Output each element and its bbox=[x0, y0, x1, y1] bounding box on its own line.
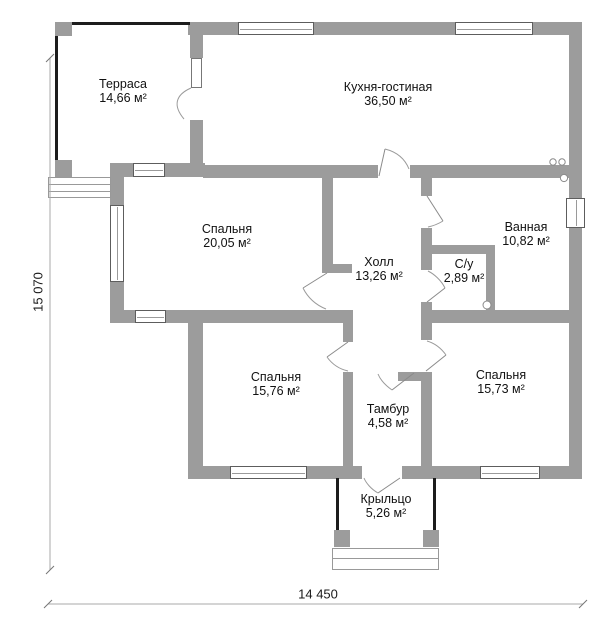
wall-hall-west-stub bbox=[322, 264, 352, 273]
door-wc bbox=[427, 288, 445, 302]
floor-plan: Терраса14,66 м² Кухня-гостиная36,50 м² С… bbox=[0, 0, 600, 622]
wall-west-south bbox=[188, 312, 203, 478]
window-terrace bbox=[133, 163, 165, 177]
wall-hall-west bbox=[322, 178, 333, 264]
door-bedroom3 bbox=[426, 355, 446, 371]
room-label-hall: Холл13,26 м² bbox=[355, 255, 403, 283]
room-label-bedroom1: Спальня20,05 м² bbox=[202, 222, 252, 250]
door-front bbox=[378, 478, 400, 493]
dimension-width: 14 450 bbox=[298, 587, 338, 602]
door-bedroom1 bbox=[303, 273, 327, 288]
dimension-height: 15 070 bbox=[31, 272, 46, 312]
wall-mid-east bbox=[430, 310, 582, 323]
room-label-kitchen: Кухня-гостиная36,50 м² bbox=[344, 80, 432, 108]
porch-pillar bbox=[423, 530, 439, 547]
room-label-tambour: Тамбур4,58 м² bbox=[367, 402, 409, 430]
wall-south bbox=[307, 466, 362, 479]
wall-hall-east bbox=[421, 228, 432, 270]
porch-edge-right bbox=[433, 478, 436, 532]
window-bathroom bbox=[566, 198, 585, 228]
steps-terrace bbox=[48, 178, 111, 198]
wall-east bbox=[569, 22, 582, 478]
wall-hall-east bbox=[421, 372, 432, 478]
window-kitchen-1 bbox=[238, 22, 314, 35]
window-kitchen-2 bbox=[455, 22, 533, 35]
terrace-edge-top bbox=[70, 22, 190, 25]
wall-tambour-stub bbox=[398, 372, 422, 381]
terrace-pillar bbox=[55, 160, 72, 177]
door-terrace bbox=[192, 59, 202, 88]
window-bedroom1 bbox=[110, 205, 124, 282]
door-bedroom2 bbox=[327, 342, 348, 357]
wall-kitchen-south bbox=[203, 165, 378, 178]
wall-kitchen-south bbox=[410, 165, 582, 178]
wall-south bbox=[188, 466, 231, 479]
room-label-bedroom2: Спальня15,76 м² bbox=[251, 370, 301, 398]
room-label-bathroom: Ванная10,82 м² bbox=[502, 220, 550, 248]
wall-wc-north bbox=[432, 245, 489, 254]
window-bedroom2 bbox=[230, 466, 307, 479]
terrace-pillar bbox=[55, 22, 72, 36]
wall-tambour-west bbox=[343, 310, 353, 342]
porch-edge-left bbox=[336, 478, 339, 532]
wall-hall-east bbox=[421, 178, 432, 196]
door-bathroom bbox=[427, 196, 443, 221]
window-sw bbox=[135, 310, 166, 323]
room-label-wc: С/у2,89 м² bbox=[444, 257, 485, 285]
dimension-lines bbox=[44, 54, 587, 608]
porch-pillar bbox=[334, 530, 350, 547]
terrace-edge-left bbox=[55, 36, 58, 160]
wall-terrace-divider bbox=[190, 22, 203, 58]
wall-tambour-west bbox=[343, 372, 353, 466]
steps-porch bbox=[332, 549, 439, 570]
room-label-porch: Крыльцо5,26 м² bbox=[361, 492, 412, 520]
room-label-terrace: Терраса14,66 м² bbox=[99, 77, 147, 105]
room-label-bedroom3: Спальня15,73 м² bbox=[476, 368, 526, 396]
window-bedroom3 bbox=[480, 466, 540, 479]
door-kitchen bbox=[379, 149, 385, 176]
